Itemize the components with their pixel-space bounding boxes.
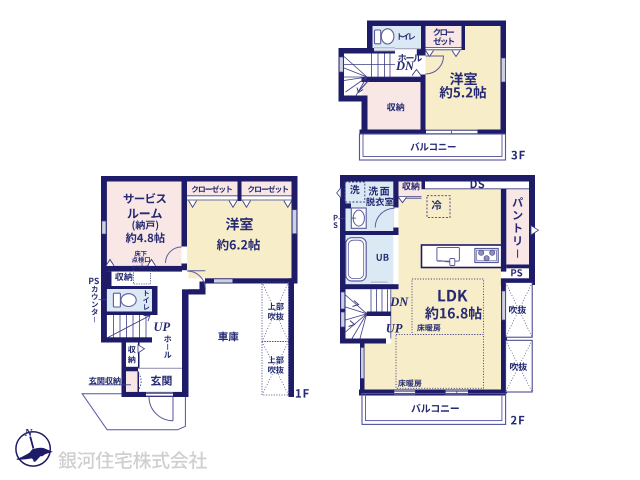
svg-text:UP: UP: [386, 322, 403, 336]
svg-text:N: N: [24, 427, 34, 439]
svg-text:DN: DN: [395, 59, 415, 73]
svg-text:DN: DN: [389, 295, 409, 309]
svg-text:UP: UP: [154, 320, 171, 334]
